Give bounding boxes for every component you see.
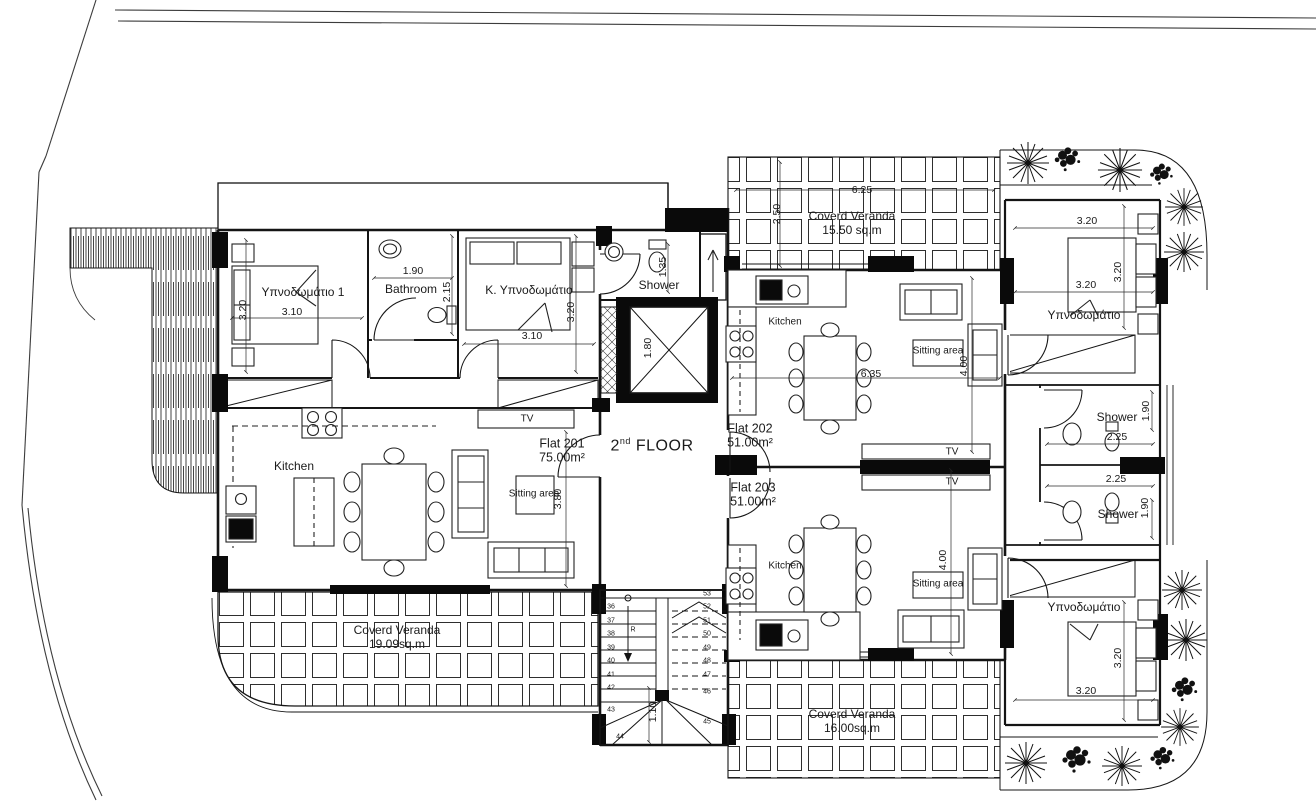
dim-shower-a-w: 2.25 bbox=[1107, 431, 1127, 443]
tv-label-203: TV bbox=[946, 476, 959, 488]
tv-label-201: TV bbox=[521, 413, 534, 425]
shower-a-label: Shower bbox=[1097, 411, 1138, 425]
stair-step-number: 47 bbox=[703, 672, 711, 679]
dim-bedroom1-height: 3.20 bbox=[237, 300, 249, 320]
veranda-202-label: Coverd Veranda 15.50 sq.m bbox=[809, 210, 896, 238]
flat-202-label: Flat 202 51.00m² bbox=[727, 422, 773, 451]
stair-step-number: 41 bbox=[607, 672, 615, 679]
dim-203-depth: 4.00 bbox=[937, 550, 949, 570]
deck-area bbox=[70, 228, 218, 493]
stair-step-number: 46 bbox=[703, 689, 711, 696]
dim-master-width: 3.10 bbox=[522, 330, 542, 342]
sitting-label-202: Sitting area bbox=[913, 345, 964, 357]
dim-elevator: 1.80 bbox=[642, 338, 654, 358]
dim-master-height: 3.20 bbox=[565, 302, 577, 322]
stair-step-number: 50 bbox=[703, 631, 711, 638]
dim-veranda202-width: 6.25 bbox=[852, 184, 872, 196]
stair-step-number: 38 bbox=[607, 631, 615, 638]
dim-bed202-c: 3.20 bbox=[1112, 262, 1124, 282]
dim-bathroom-height: 2.15 bbox=[441, 282, 453, 302]
stair-step-number: 45 bbox=[703, 719, 711, 726]
veranda-203-label: Coverd Veranda 16.00sq.m bbox=[809, 708, 896, 736]
dim-bed203-b: 3.20 bbox=[1076, 685, 1096, 697]
stair-step-number: 49 bbox=[703, 645, 711, 652]
floor-title: 2nd FLOOR bbox=[611, 436, 694, 456]
dim-bathroom-width: 1.90 bbox=[403, 265, 423, 277]
stair-step-number: 36 bbox=[607, 604, 615, 611]
stair-step-number: 48 bbox=[703, 658, 711, 665]
bedroom-label-203: Υπνοδωμάτιο bbox=[1048, 601, 1121, 615]
stair-step-number: 53 bbox=[703, 591, 711, 598]
stairs-r-mark: R bbox=[630, 627, 635, 634]
flat-203-label: Flat 203 51.00m² bbox=[730, 481, 776, 510]
stair-step-number: 39 bbox=[607, 645, 615, 652]
room-label-bedroom1: Υπνοδωμάτιο 1 bbox=[262, 286, 345, 300]
dim-bed202-a: 3.20 bbox=[1077, 215, 1097, 227]
stair-step-number: 43 bbox=[607, 707, 615, 714]
dim-shower-b-w: 2.25 bbox=[1106, 473, 1126, 485]
floor-plan-drawing bbox=[0, 0, 1316, 802]
dim-bed202-b: 3.20 bbox=[1076, 279, 1096, 291]
room-label-master-bedroom: Κ. Υπνοδωμάτιο bbox=[485, 284, 572, 298]
dim-202-depth: 4.00 bbox=[958, 356, 970, 376]
floor-plan-canvas: Υπνοδωμάτιο 1 3.10 3.20 Bathroom 1.90 2.… bbox=[0, 0, 1316, 802]
room-label-bathroom: Bathroom bbox=[385, 283, 437, 297]
dim-shower-b-h: 1.90 bbox=[1139, 498, 1151, 518]
kitchen-label-203: Kitchen bbox=[768, 560, 801, 572]
tv-label-202: TV bbox=[946, 446, 959, 458]
dim-shower-entrance: 1.35 bbox=[657, 257, 669, 277]
stair-step-number: 42 bbox=[607, 685, 615, 692]
room-label-shower-entrance: Shower bbox=[639, 279, 680, 293]
stair-step-number: 44 bbox=[616, 734, 624, 741]
sitting-label-203: Sitting area bbox=[913, 578, 964, 590]
shower-b-label: Shower bbox=[1098, 508, 1139, 522]
stair-step-number: 51 bbox=[703, 618, 711, 625]
stair-step-number: 52 bbox=[703, 604, 711, 611]
stair-step-number: 40 bbox=[607, 658, 615, 665]
dim-shower-a-h: 1.90 bbox=[1140, 401, 1152, 421]
bedroom-label-202: Υπνοδωμάτιο bbox=[1048, 309, 1121, 323]
dim-202-living: 6.35 bbox=[861, 368, 881, 380]
dim-201-living: 3.80 bbox=[552, 489, 564, 509]
kitchen-label-202: Kitchen bbox=[768, 316, 801, 328]
kitchen-label-201: Kitchen bbox=[274, 460, 314, 474]
elevator bbox=[601, 297, 718, 403]
dim-bed203-a: 3.20 bbox=[1112, 648, 1124, 668]
dim-bedroom1-width: 3.10 bbox=[282, 306, 302, 318]
dim-stairs-width: 1.10 bbox=[647, 702, 659, 722]
dim-veranda202-depth: 2.50 bbox=[771, 204, 783, 224]
stair-step-number: 37 bbox=[607, 618, 615, 625]
veranda-201-label: Coverd Veranda 19.09sq.m bbox=[354, 624, 441, 652]
flat-201-label: Flat 201 75.00m² bbox=[539, 437, 585, 466]
